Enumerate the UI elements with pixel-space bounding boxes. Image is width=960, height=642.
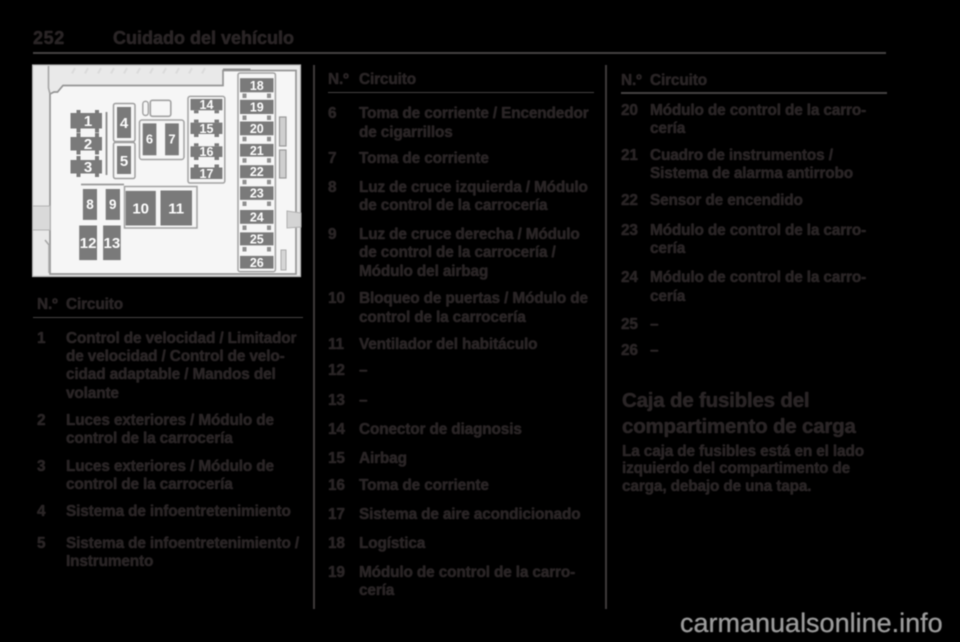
svg-text:18: 18: [250, 79, 264, 93]
svg-text:26: 26: [250, 256, 264, 270]
svg-text:3: 3: [84, 159, 92, 176]
svg-text:20: 20: [250, 122, 264, 136]
svg-text:23: 23: [250, 187, 264, 201]
svg-text:9: 9: [109, 197, 117, 212]
svg-text:13: 13: [104, 235, 121, 252]
svg-text:2: 2: [84, 136, 92, 153]
svg-text:16: 16: [200, 145, 214, 159]
svg-text:8: 8: [86, 197, 94, 212]
svg-text:10: 10: [132, 201, 149, 218]
svg-text:17: 17: [200, 167, 214, 181]
svg-text:24: 24: [250, 210, 264, 224]
svg-text:4: 4: [120, 115, 129, 132]
svg-text:22: 22: [250, 165, 264, 179]
svg-text:11: 11: [168, 201, 184, 218]
svg-text:25: 25: [250, 232, 264, 246]
svg-text:6: 6: [146, 132, 153, 147]
svg-text:5: 5: [120, 153, 128, 170]
svg-text:19: 19: [250, 100, 264, 114]
svg-text:15: 15: [200, 122, 214, 136]
svg-text:14: 14: [200, 98, 214, 112]
svg-text:21: 21: [250, 144, 264, 158]
svg-text:1: 1: [84, 113, 92, 130]
svg-text:7: 7: [168, 132, 175, 147]
svg-text:12: 12: [80, 235, 97, 252]
